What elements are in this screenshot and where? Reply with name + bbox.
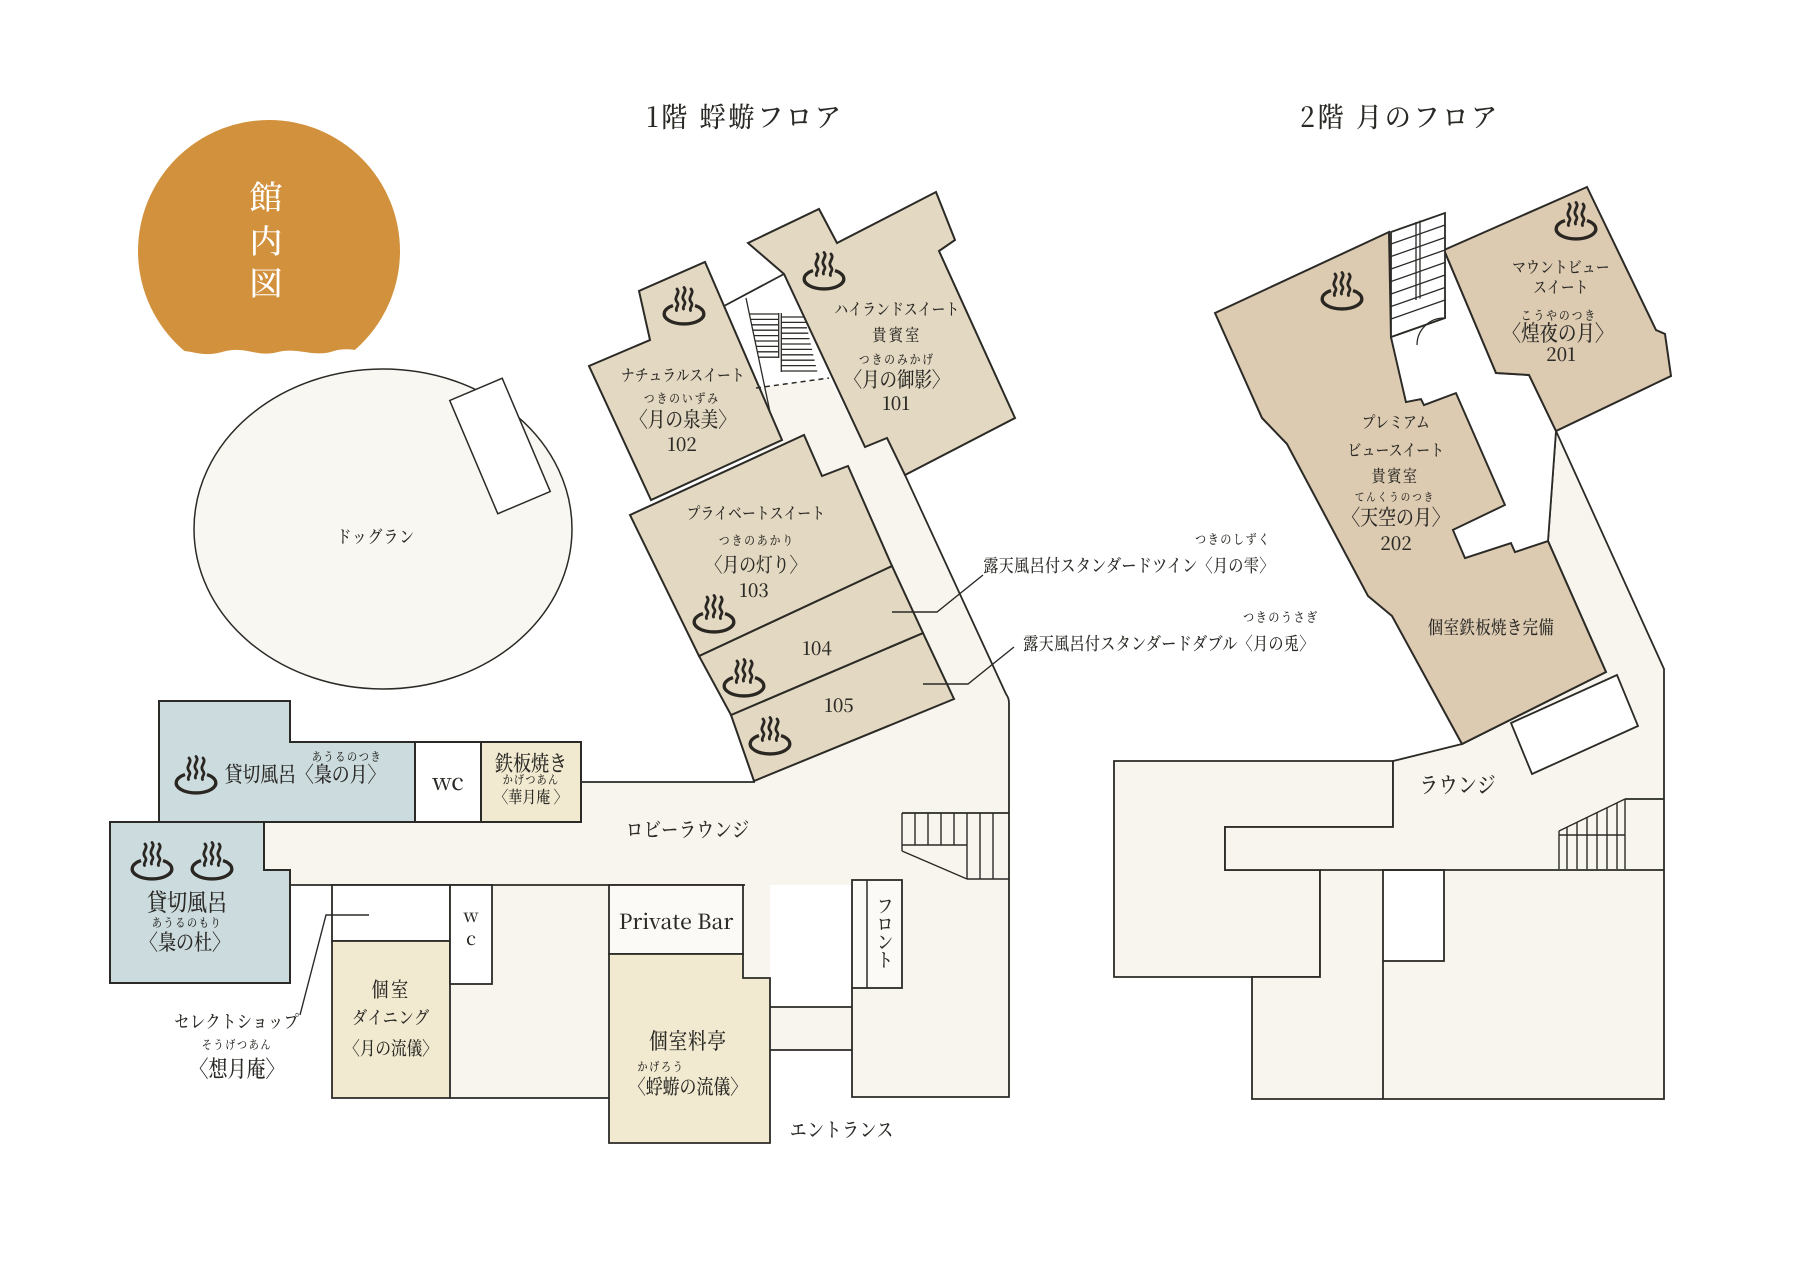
svg-text:セレクトショップ: セレクトショップ <box>174 1008 299 1034</box>
svg-text:個室料亭: 個室料亭 <box>649 1024 727 1056</box>
svg-text:Private Bar: Private Bar <box>619 906 734 936</box>
svg-text:ラウンジ: ラウンジ <box>1420 768 1497 800</box>
svg-text:ロビーラウンジ: ロビーラウンジ <box>626 813 750 843</box>
svg-text:個室鉄板焼き完備: 個室鉄板焼き完備 <box>1428 613 1554 640</box>
svg-text:〈想月庵〉: 〈想月庵〉 <box>189 1050 284 1084</box>
svg-text:貸切風呂〈梟の月〉: 貸切風呂〈梟の月〉 <box>225 758 386 789</box>
svg-text:露天風呂付スタンダードダブル〈月の兎〉: 露天風呂付スタンダードダブル〈月の兎〉 <box>1023 630 1314 656</box>
svg-text:ト: ト <box>877 945 893 973</box>
svg-text:スイート: スイート <box>1533 274 1588 298</box>
svg-text:ナチュラルスイート: ナチュラルスイート <box>621 362 745 386</box>
svg-text:ドッグラン: ドッグラン <box>337 524 415 549</box>
svg-text:つきのあかり: つきのあかり <box>719 530 795 549</box>
svg-text:プレミアム: プレミアム <box>1362 409 1430 433</box>
svg-text:貴賓室: 貴賓室 <box>1372 462 1419 487</box>
svg-text:ビュースイート: ビュースイート <box>1348 437 1445 461</box>
svg-text:c: c <box>466 925 476 951</box>
svg-text:101: 101 <box>882 390 910 416</box>
svg-text:ハイランドスイート: ハイランドスイート <box>834 296 959 320</box>
svg-text:ダイニング: ダイニング <box>352 1004 430 1030</box>
svg-text:201: 201 <box>1546 341 1576 367</box>
svg-text:2階 月のフロア: 2階 月のフロア <box>1300 96 1500 136</box>
svg-text:103: 103 <box>739 577 769 603</box>
svg-text:つきのしずく: つきのしずく <box>1195 529 1271 548</box>
svg-text:〈天空の月〉: 〈天空の月〉 <box>1342 501 1449 532</box>
svg-text:露天風呂付スタンダードツイン〈月の雫〉: 露天風呂付スタンダードツイン〈月の雫〉 <box>983 552 1274 578</box>
svg-text:館: 館 <box>250 172 283 219</box>
svg-text:104: 104 <box>802 635 832 661</box>
svg-text:プライベートスイート: プライベートスイート <box>687 500 826 524</box>
svg-text:102: 102 <box>667 431 697 457</box>
svg-text:図: 図 <box>250 258 283 305</box>
svg-text:1階 蜉蝣フロア: 1階 蜉蝣フロア <box>646 96 843 136</box>
svg-text:〈梟の杜〉: 〈梟の杜〉 <box>140 926 230 957</box>
svg-text:つきのうさぎ: つきのうさぎ <box>1243 607 1319 626</box>
svg-text:貴賓室: 貴賓室 <box>872 321 921 346</box>
svg-text:〈月の灯り〉: 〈月の灯り〉 <box>706 548 807 578</box>
svg-text:〈月の泉美〉: 〈月の泉美〉 <box>630 403 736 434</box>
svg-text:105: 105 <box>824 692 854 718</box>
svg-text:〈華月庵 〉: 〈華月庵 〉 <box>494 783 567 808</box>
svg-text:202: 202 <box>1380 530 1412 556</box>
svg-text:〈月の流儀〉: 〈月の流儀〉 <box>344 1034 437 1061</box>
svg-text:wc: wc <box>431 764 464 797</box>
svg-text:エントランス: エントランス <box>790 1114 894 1143</box>
svg-text:〈蜉蝣の流儀〉: 〈蜉蝣の流儀〉 <box>629 1070 747 1100</box>
svg-text:内: 内 <box>250 216 283 263</box>
svg-text:個室: 個室 <box>371 974 410 1004</box>
